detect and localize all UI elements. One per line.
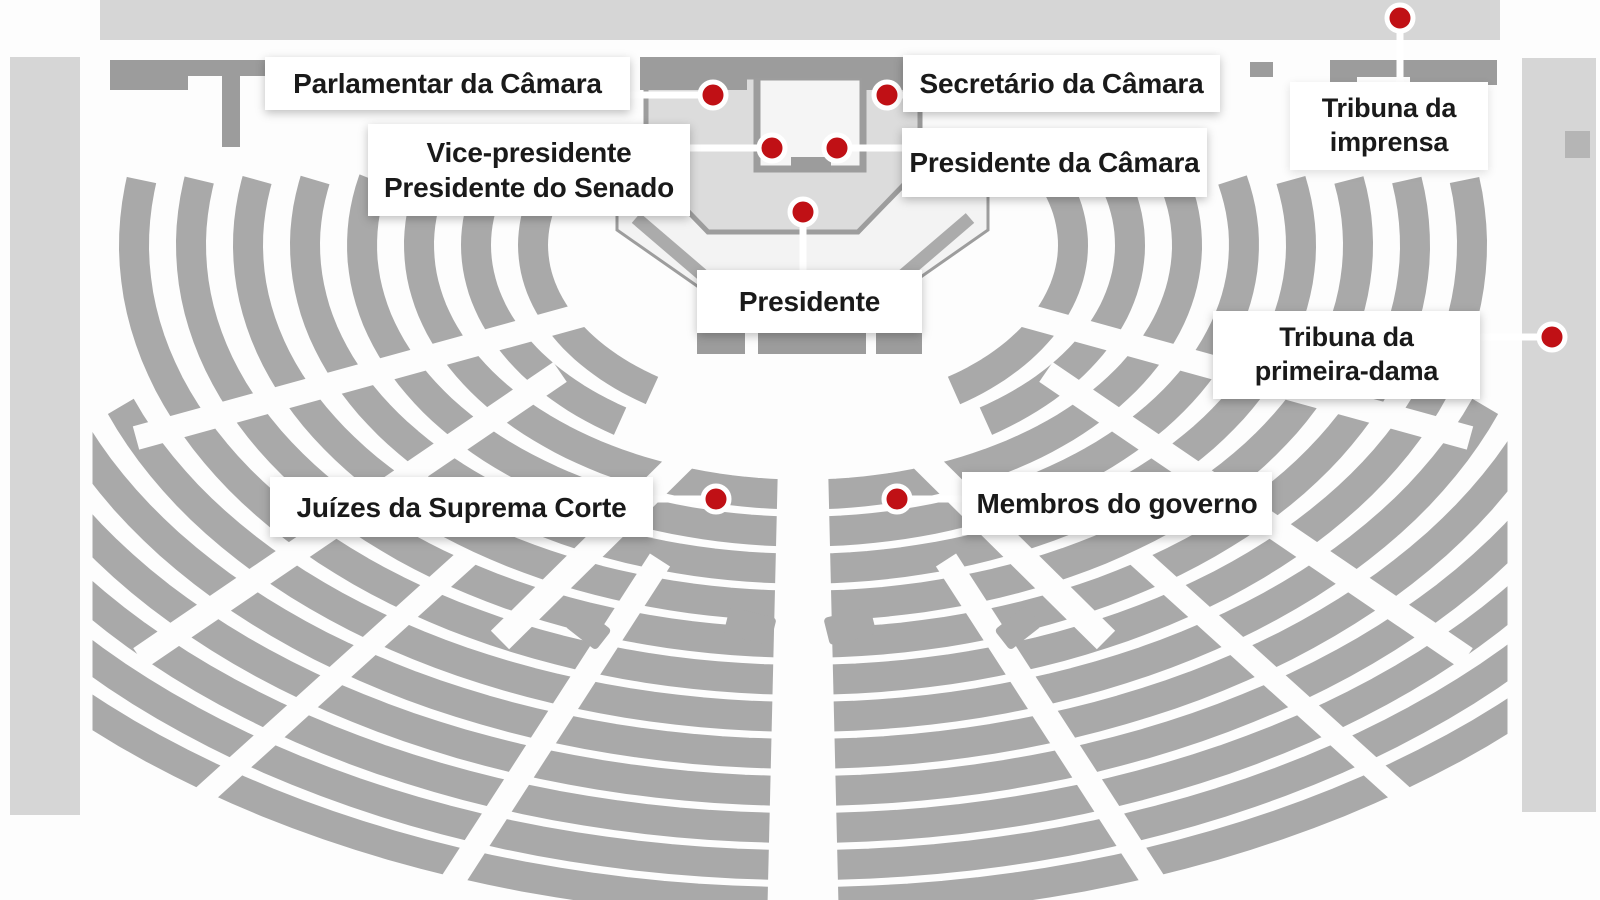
label-tribuna-da-primeira-dama: Tribuna da primeira-dama xyxy=(1213,311,1480,399)
label-text: Membros do governo xyxy=(976,486,1257,521)
label-text: Tribuna da xyxy=(1279,321,1414,355)
label-text: Tribuna da xyxy=(1322,92,1457,126)
label-text: Presidente da Câmara xyxy=(909,145,1199,180)
label-vice-presidente-presidente-do-senado: Vice-presidente Presidente do Senado xyxy=(368,124,690,216)
label-juizes-da-suprema-corte: Juízes da Suprema Corte xyxy=(270,477,653,537)
chamber-seating-diagram: Parlamentar da Câmara Secretário da Câma… xyxy=(0,0,1600,900)
seat-marker-vice xyxy=(759,135,785,161)
seat-marker-presidente xyxy=(790,199,816,225)
label-text: primeira-dama xyxy=(1255,355,1438,389)
label-presidente-da-camara: Presidente da Câmara xyxy=(902,128,1207,197)
label-tribuna-da-imprensa: Tribuna da imprensa xyxy=(1290,82,1488,170)
seat-marker-primeira-dama xyxy=(1539,324,1565,350)
label-presidente: Presidente xyxy=(697,270,922,333)
label-text: Vice-presidente xyxy=(426,135,631,170)
seat-marker-secretario xyxy=(874,82,900,108)
seat-marker-imprensa xyxy=(1387,5,1413,31)
label-membros-do-governo: Membros do governo xyxy=(962,472,1272,535)
label-text: Secretário da Câmara xyxy=(920,66,1204,101)
seat-marker-membros xyxy=(884,486,910,512)
label-text: imprensa xyxy=(1330,126,1448,160)
seat-marker-juizes xyxy=(703,486,729,512)
label-text: Presidente xyxy=(739,284,880,319)
seat-marker-pres-camara xyxy=(824,135,850,161)
label-secretario-da-camara: Secretário da Câmara xyxy=(903,55,1220,112)
label-parlamentar-da-camara: Parlamentar da Câmara xyxy=(265,57,630,110)
speaker-tribune-bar xyxy=(697,333,922,354)
press-tribune-step xyxy=(1565,131,1590,158)
label-text: Juízes da Suprema Corte xyxy=(297,490,627,525)
top-gallery-band xyxy=(100,0,1500,40)
entrance-structure-left xyxy=(110,60,270,147)
seat-marker-parlamentar xyxy=(700,82,726,108)
label-text: Presidente do Senado xyxy=(384,170,674,205)
label-text: Parlamentar da Câmara xyxy=(293,66,602,101)
